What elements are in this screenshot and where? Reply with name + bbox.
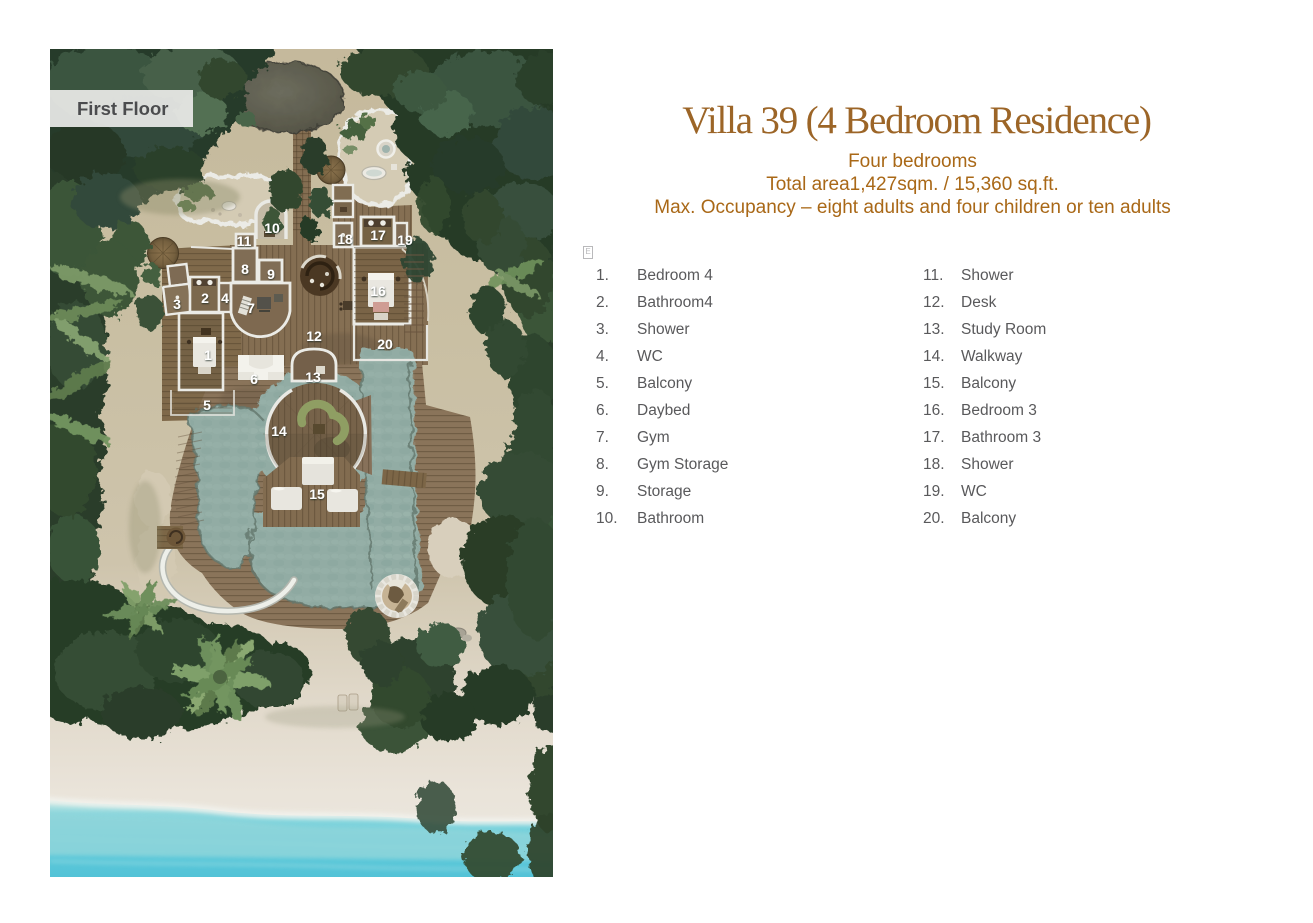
svg-text:1: 1 <box>204 347 212 363</box>
svg-text:17: 17 <box>370 227 386 243</box>
svg-text:4: 4 <box>221 290 229 306</box>
svg-text:15: 15 <box>309 486 325 502</box>
svg-text:5: 5 <box>203 397 211 413</box>
svg-text:18: 18 <box>337 231 353 247</box>
svg-text:6: 6 <box>250 371 258 387</box>
svg-text:11: 11 <box>237 233 252 249</box>
svg-text:7: 7 <box>247 300 255 316</box>
svg-text:20: 20 <box>377 336 393 352</box>
svg-text:13: 13 <box>305 369 321 385</box>
svg-text:14: 14 <box>271 423 287 439</box>
svg-text:3: 3 <box>173 296 181 312</box>
svg-text:9: 9 <box>267 266 275 282</box>
svg-text:16: 16 <box>370 283 386 299</box>
svg-text:10: 10 <box>264 220 280 236</box>
svg-text:8: 8 <box>241 261 249 277</box>
svg-text:12: 12 <box>306 328 322 344</box>
svg-text:19: 19 <box>397 232 413 248</box>
svg-text:2: 2 <box>201 290 209 306</box>
